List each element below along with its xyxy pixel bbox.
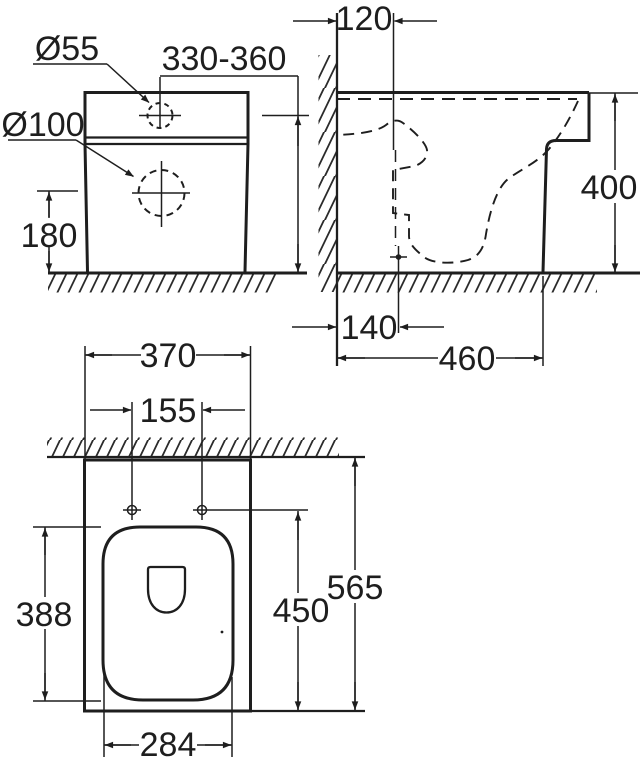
dim-label-hole-large: Ø100 [1,106,84,144]
dim-label-bolt-spacing: 155 [140,392,197,430]
dim-label-seat-width: 284 [140,726,197,764]
dim-label-hole-small: Ø55 [35,30,99,68]
print-dot [221,631,224,634]
dim-label-total-depth: 565 [327,569,384,607]
body-outline [85,460,251,711]
dim-label-bolt-depth: 450 [273,592,330,630]
dim-label-drain-offset: 140 [341,309,398,347]
label-leader-arrow-d55 [107,64,149,103]
dim-label-supply-offset: 120 [336,0,393,38]
wall-hatch [319,55,337,292]
dim-label-drain-height: 180 [21,217,78,255]
bolt-hole-left [123,500,141,520]
cistern-outline [85,93,248,272]
side-view: 120 400 140 460 [292,0,640,378]
dim-label-depth: 460 [439,340,496,378]
technical-drawing: Ø55 Ø100 330-360 180 120 400 [0,0,640,767]
dim-label-height: 400 [581,169,638,207]
drain-point-dot [396,254,402,260]
sump-outline [148,567,185,613]
floor-hatch [48,275,276,293]
drawing-sheet: Ø55 Ø100 330-360 180 120 400 [0,0,640,767]
bowl-interior-hidden-outline [337,101,578,263]
plan-view: 370 155 388 450 565 284 [16,337,384,764]
wall-hatch [47,438,339,457]
dim-label-supply-height: 330-360 [162,40,287,78]
dim-label-width: 370 [140,337,197,375]
dim-label-seat-length: 388 [16,596,73,634]
floor-hatch [337,275,597,293]
front-view: Ø55 Ø100 330-360 180 [1,30,309,293]
